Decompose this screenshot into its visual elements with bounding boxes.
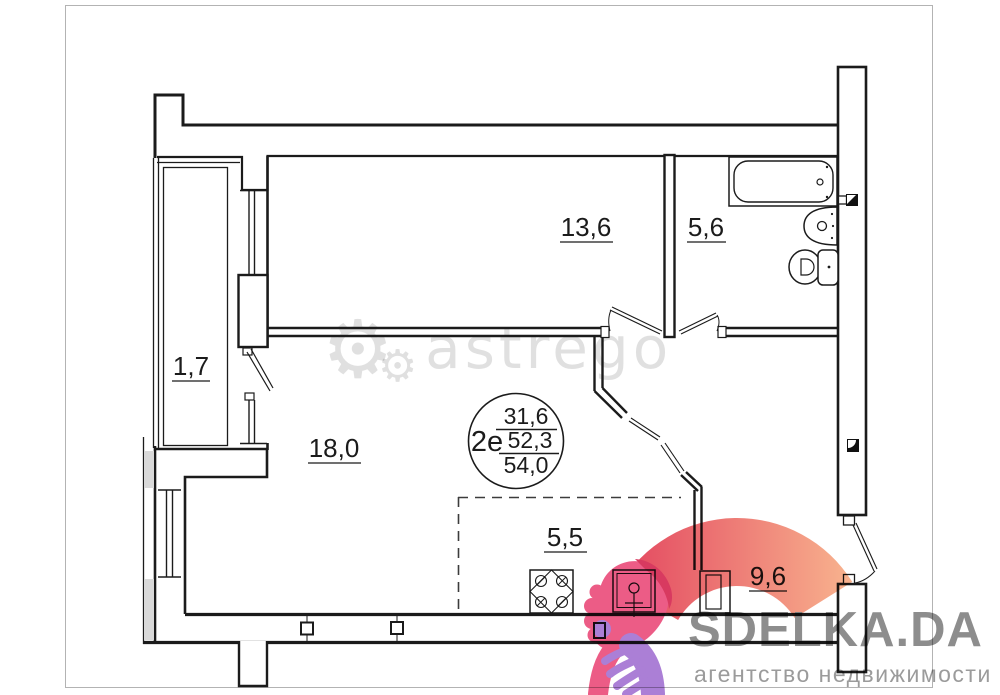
room-area-label: 5,6 [688, 212, 724, 242]
right-wall-column [838, 67, 877, 672]
door-room [601, 307, 662, 338]
bathroom-wall [665, 155, 675, 337]
bottom-wall-pillars [301, 616, 605, 641]
door-hallway [629, 418, 684, 473]
washbasin-icon [804, 207, 837, 245]
bottom-protrusion [239, 641, 267, 686]
wall-section-hatch [144, 451, 154, 640]
toilet-icon [789, 250, 838, 285]
apartment-type-label: 2е [471, 426, 503, 458]
window-left-wall [158, 490, 181, 577]
floor-plan-drawing: 1,7 13,6 5,6 18,0 5,5 9,6 2е 31,6 52,3 5… [0, 0, 1000, 695]
room-area-label: 13,6 [561, 212, 612, 242]
balcony-window-bottom [240, 400, 267, 444]
room-area-label: 5,5 [547, 522, 583, 552]
room-area-label: 18,0 [309, 433, 360, 463]
balcony-glazing [154, 158, 241, 449]
balcony-divider [239, 156, 274, 450]
stove-icon [530, 570, 573, 613]
entry-door [844, 516, 878, 584]
vent-shaft-icon [846, 194, 858, 206]
bathtub-icon [729, 157, 837, 206]
door-bathroom [679, 313, 726, 338]
page-frame [66, 6, 933, 688]
floor-plan-page: ⚙ ⚙ astrego [0, 0, 1000, 695]
door-kitchen-frame [700, 571, 730, 613]
balcony-door-block [239, 275, 268, 347]
room-area-label: 1,7 [173, 351, 209, 381]
balcony-window-top [240, 190, 267, 275]
middle-area-value: 52,3 [508, 427, 553, 453]
kitchen-sink-icon [613, 570, 655, 617]
total-area-value: 54,0 [504, 452, 549, 478]
living-area-value: 31,6 [504, 403, 549, 429]
area-summary-badge: 2е 31,6 52,3 54,0 [469, 394, 564, 489]
vent-shaft-icon [847, 439, 859, 452]
room-area-label: 9,6 [750, 561, 786, 591]
balcony-door-leaf [243, 348, 273, 400]
